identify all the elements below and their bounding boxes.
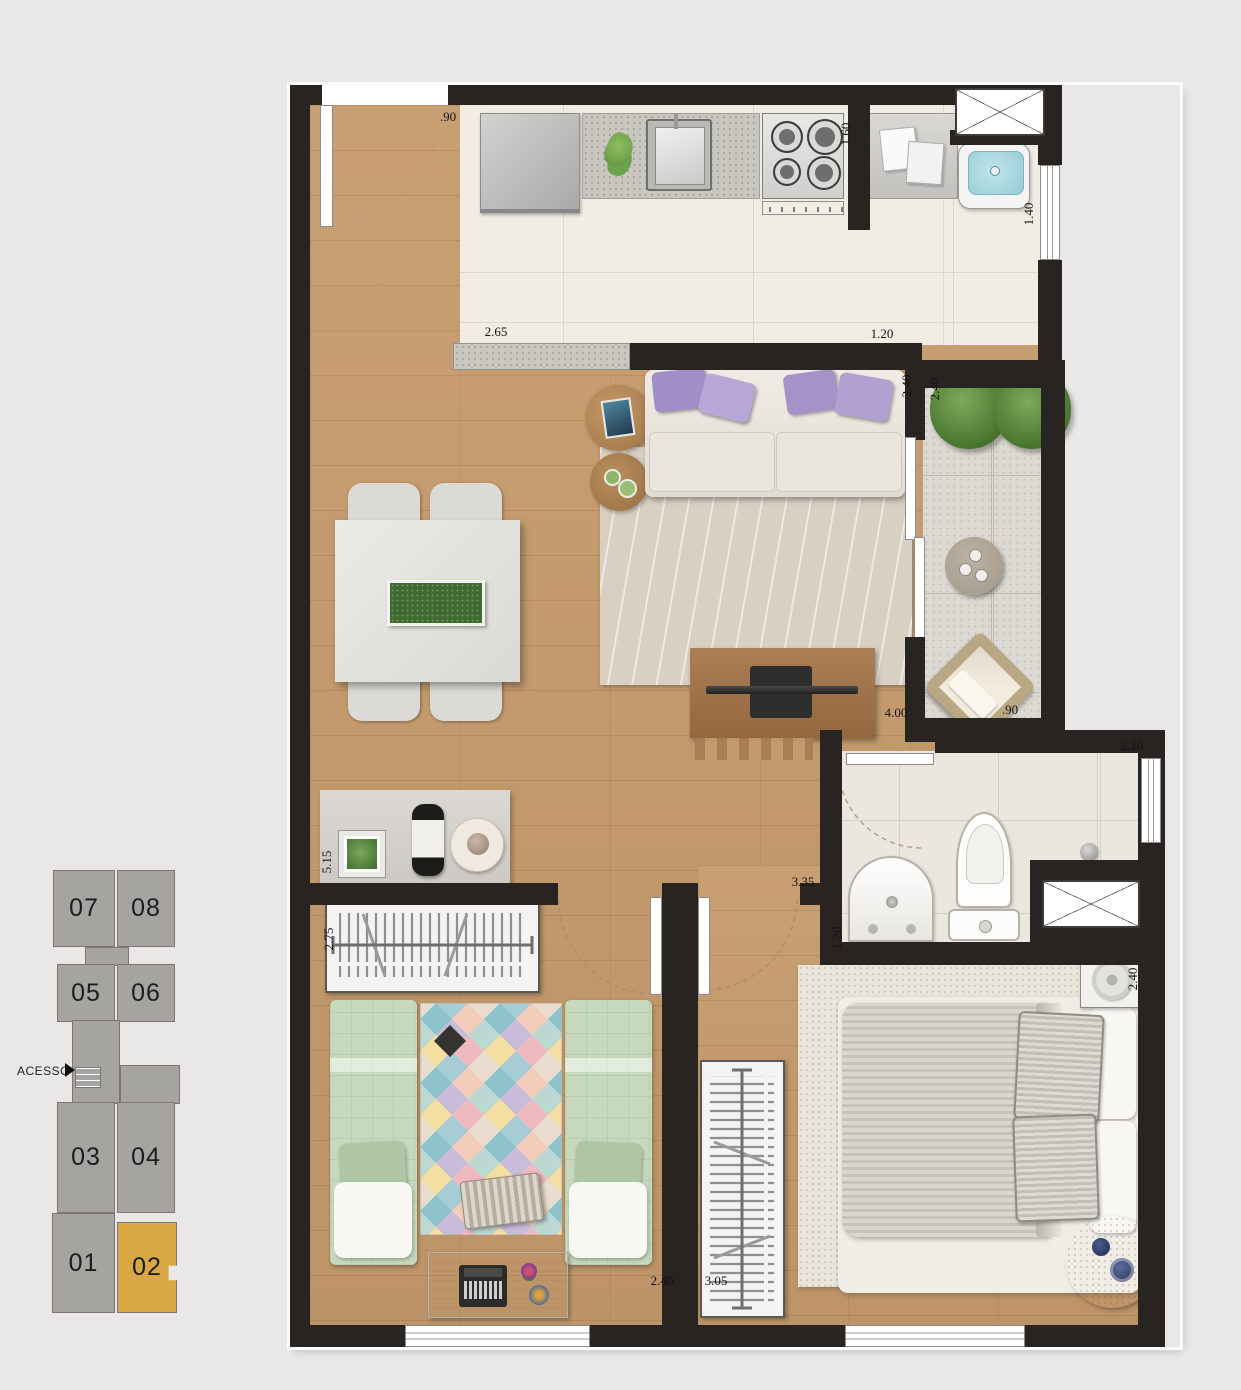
balcony-slider-panel	[914, 537, 925, 640]
pillow-striped	[1013, 1011, 1105, 1123]
wall-segment	[290, 1325, 405, 1347]
dim-label: 1.20	[829, 916, 845, 960]
wall-segment	[290, 85, 310, 1347]
unit-label: 06	[131, 979, 161, 1008]
entry-opening	[322, 85, 448, 105]
decor-item	[1092, 1238, 1110, 1256]
keyplan-corridor	[72, 1020, 120, 1104]
key-plan: 07 08 05 06 03 04 01 02 ACESSO	[15, 868, 190, 1323]
laundry-tank	[958, 143, 1030, 209]
utility-shaft	[1042, 880, 1140, 928]
burner	[807, 156, 841, 190]
coffee-machine	[412, 804, 444, 876]
desk	[428, 1252, 568, 1318]
console-slats	[695, 738, 813, 760]
seat-cushion	[776, 432, 902, 492]
keyplan-unit-05[interactable]: 05	[57, 964, 115, 1022]
laptop	[459, 1265, 507, 1307]
framed-plant	[338, 830, 386, 878]
single-bed-left	[330, 1000, 417, 1265]
kettle	[467, 833, 489, 855]
floor-plan-canvas: 07 08 05 06 03 04 01 02 ACESSO	[0, 0, 1241, 1390]
tv-screen	[706, 686, 858, 694]
flush-button	[979, 920, 992, 933]
unit-label: 08	[131, 894, 161, 923]
dim-label: .90	[426, 109, 470, 125]
tap-handle	[906, 924, 916, 934]
sink-drain	[886, 896, 898, 908]
dim-label: 1.20	[860, 326, 904, 342]
bathroom-sink	[848, 856, 934, 942]
pillow-white	[334, 1182, 412, 1258]
dim-label: .90	[988, 702, 1032, 718]
keyplan-unit-07[interactable]: 07	[53, 870, 115, 947]
dim-label: 4.00	[874, 705, 918, 721]
flowers-decor	[521, 1263, 537, 1279]
bedroom2-door-leaf	[698, 897, 710, 995]
throw-pillow	[697, 372, 757, 423]
wall-segment	[848, 85, 870, 230]
burner	[773, 158, 801, 186]
dim-label: 2.65	[474, 324, 518, 340]
hanger-rail	[327, 900, 538, 991]
wardrobe-bedroom1	[325, 898, 540, 993]
shower-head	[1080, 843, 1098, 861]
keyplan-unit-06[interactable]: 06	[117, 964, 175, 1022]
dim-label: 2.40	[1125, 957, 1141, 1001]
balcony-slider-panel	[905, 437, 916, 540]
serving-tray	[450, 818, 504, 872]
side-table	[585, 385, 651, 451]
unit-label: 05	[71, 979, 101, 1008]
dim-label: 1.60	[838, 112, 854, 156]
balcony-table	[945, 537, 1003, 595]
unit-label: 03	[71, 1143, 101, 1172]
dim-label: 2.40	[927, 367, 943, 411]
refrigerator	[480, 113, 580, 213]
cup	[959, 563, 972, 576]
wall-segment	[300, 883, 558, 905]
keyplan-unit-02-selected[interactable]: 02	[117, 1222, 177, 1313]
dim-label: 3.05	[694, 1273, 738, 1289]
throw-pillow	[782, 369, 839, 416]
dim-label: 3.35	[781, 874, 825, 890]
unit-label: 01	[69, 1249, 99, 1278]
dim-label: 2.75	[321, 917, 337, 961]
cooktop	[762, 113, 844, 199]
wall-segment	[1025, 1325, 1165, 1347]
access-label: ACESSO	[17, 1064, 63, 1078]
faucet	[674, 113, 678, 129]
entry-door-leaf	[320, 105, 333, 227]
seat-cushion	[649, 432, 775, 492]
sink-basin	[655, 127, 705, 185]
keyplan-elevator-lobby	[120, 1065, 180, 1104]
unit-label: 04	[131, 1143, 161, 1172]
access-arrow-icon	[65, 1063, 75, 1077]
single-bed-right	[565, 1000, 652, 1265]
keyplan-unit-08[interactable]: 08	[117, 870, 175, 947]
bedroom1-window	[405, 1325, 590, 1347]
keyplan-unit-04[interactable]: 04	[117, 1102, 175, 1213]
cooktop-controls	[762, 201, 844, 215]
dim-label: 2.40	[899, 364, 915, 408]
wall-segment	[1041, 360, 1065, 742]
dim-label: 5.15	[319, 840, 335, 884]
laptop-screen	[464, 1268, 502, 1277]
cup	[969, 549, 982, 562]
unit-label: 02	[132, 1253, 162, 1282]
cup	[975, 569, 988, 582]
tv-console	[690, 648, 875, 738]
bedroom1-door-leaf	[650, 897, 662, 995]
bench	[459, 1172, 544, 1229]
pillow-white	[569, 1182, 647, 1258]
tank-drain	[990, 166, 1000, 176]
tap-handle	[868, 924, 878, 934]
plant-art	[347, 839, 377, 869]
toilet-lid	[966, 824, 1004, 884]
keyplan-unit-01[interactable]: 01	[52, 1213, 115, 1313]
unit-label: 07	[69, 894, 99, 923]
kitchen-pass-counter	[453, 343, 630, 370]
keyplan-stairs	[75, 1067, 101, 1088]
dining-table	[335, 520, 520, 682]
laundry-counter	[868, 113, 958, 199]
toilet	[956, 812, 1012, 908]
wall-segment	[905, 637, 925, 742]
wall-segment	[590, 1325, 845, 1347]
wall-segment	[448, 85, 1040, 105]
keyplan-unit-03[interactable]: 03	[57, 1102, 115, 1213]
side-table-small	[590, 453, 648, 511]
table-planter	[387, 580, 485, 626]
cup	[618, 479, 637, 498]
apartment-plan: .90 1.60 1.40 2.65 1.20 2.40 2.40 4.00 .…	[290, 85, 1180, 1347]
bathroom-window	[1141, 758, 1161, 843]
flowers-decor	[529, 1285, 549, 1305]
laundry-window	[1040, 165, 1060, 260]
sideboard	[320, 790, 510, 885]
pillow-striped	[1012, 1114, 1100, 1223]
bathroom-door-leaf	[846, 753, 934, 765]
dim-label: 2.40	[640, 1273, 684, 1289]
bedroom2-window	[845, 1325, 1025, 1347]
dim-label: 1.40	[1021, 192, 1037, 236]
magazine	[601, 397, 636, 439]
laptop-keyboard	[464, 1281, 502, 1299]
decor-item	[1110, 1258, 1134, 1282]
kitchen-sink	[646, 119, 712, 191]
toilet-tank	[948, 909, 1020, 941]
utility-shaft	[955, 88, 1045, 136]
folded-clothes	[906, 141, 945, 185]
wall-segment	[630, 343, 922, 370]
burner	[771, 121, 803, 153]
wall-segment	[1038, 260, 1062, 370]
sofa	[645, 370, 905, 497]
dim-label: 2.10	[1110, 738, 1154, 754]
throw-pillow	[834, 372, 894, 423]
